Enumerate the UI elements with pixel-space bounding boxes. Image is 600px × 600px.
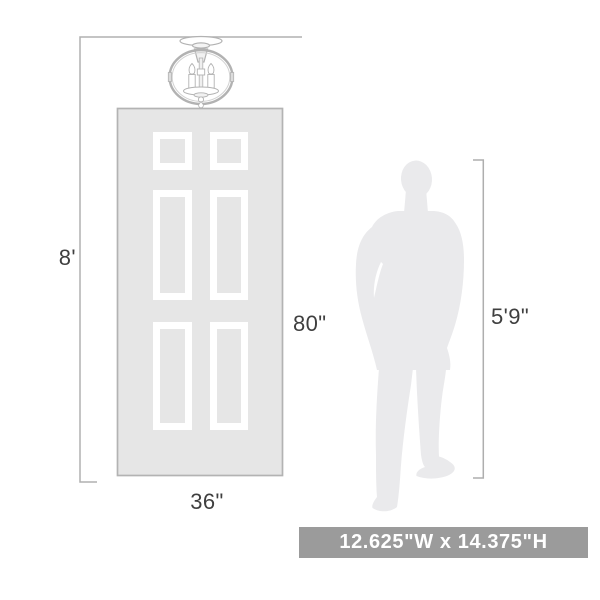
person-silhouette-icon xyxy=(356,159,464,511)
person-height-dimension-line xyxy=(473,160,483,478)
person-height-label: 5'9" xyxy=(491,304,529,330)
door-slab xyxy=(118,109,283,476)
door-icon xyxy=(118,109,283,476)
product-dimension-diagram: 8' 80" 36" 5'9" 12.625"W x 14.375"H xyxy=(0,0,600,600)
ceiling-light-icon xyxy=(168,37,233,108)
product-size-badge: 12.625"W x 14.375"H xyxy=(299,527,588,558)
diagram-canvas xyxy=(0,0,600,600)
ceiling-height-label: 8' xyxy=(36,245,76,271)
door-height-label: 80" xyxy=(293,311,326,337)
door-width-label: 36" xyxy=(172,489,242,515)
